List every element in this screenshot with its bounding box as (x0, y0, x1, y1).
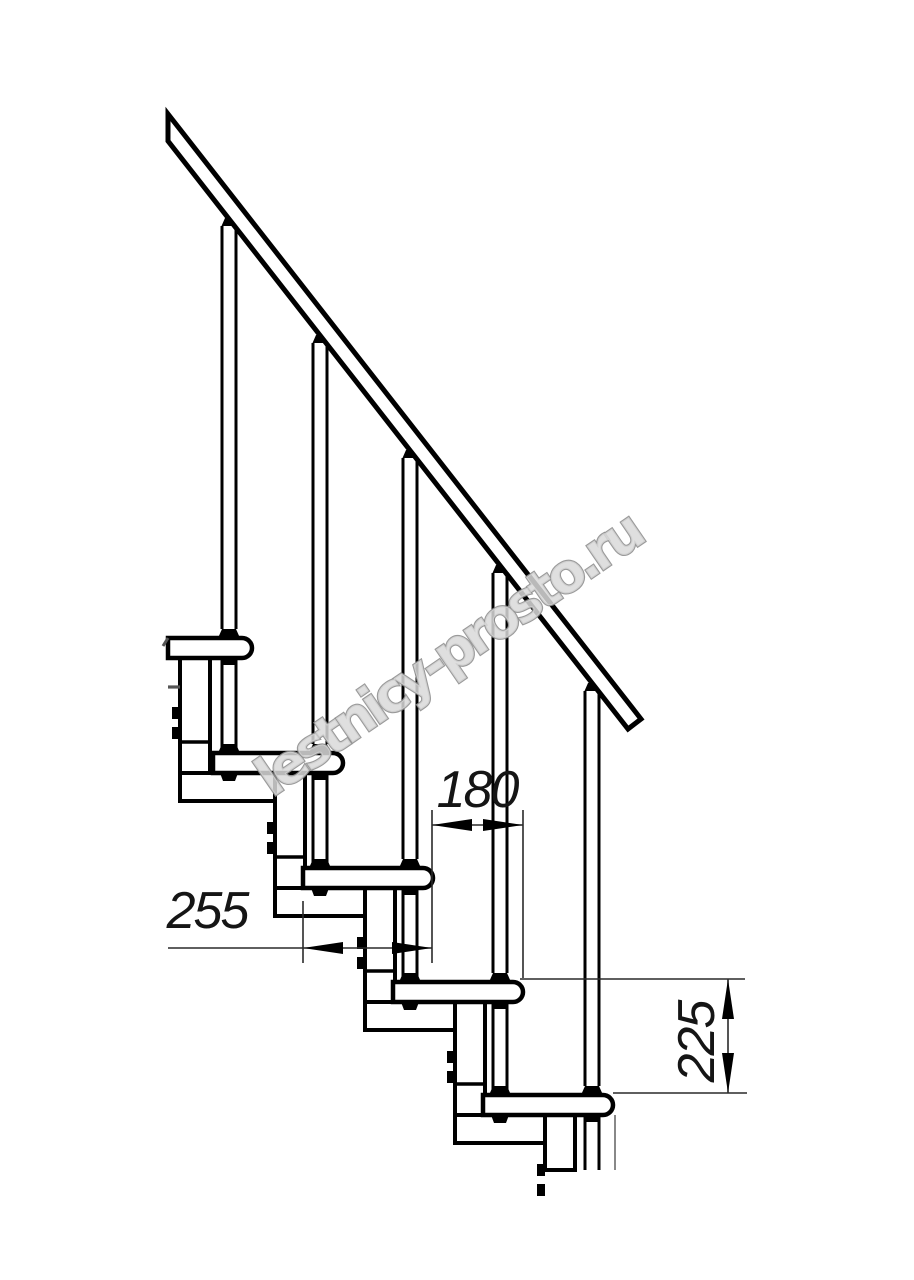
dimension-label-255: 255 (166, 882, 251, 940)
plate-bolt (537, 1164, 545, 1176)
tread-bolt-nut (491, 1115, 509, 1123)
dimension-label-180: 180 (437, 761, 520, 819)
plate-bolt (447, 1051, 455, 1063)
plate-bolt (172, 707, 180, 719)
dimension-label-225: 225 (668, 999, 726, 1084)
plate-bolt (537, 1184, 545, 1196)
plate-bolt (172, 727, 180, 739)
tread-bolt-nut (311, 888, 329, 896)
plate-bolt (267, 822, 275, 834)
tread (168, 638, 252, 658)
plate-bolt (357, 957, 365, 969)
tread-support-plate (545, 1115, 575, 1170)
tread (393, 982, 523, 1002)
drawing-canvas: 180255225lestnicy-prosto.ru (0, 0, 914, 1280)
tread-bolt-nut (401, 1002, 419, 1010)
tread (303, 868, 433, 888)
plate-bolt (447, 1071, 455, 1083)
tread-bolt-nut (220, 773, 238, 781)
tread (483, 1095, 613, 1115)
plate-bolt (267, 842, 275, 854)
staircase-technical-drawing: 180255225lestnicy-prosto.ru (0, 0, 914, 1280)
